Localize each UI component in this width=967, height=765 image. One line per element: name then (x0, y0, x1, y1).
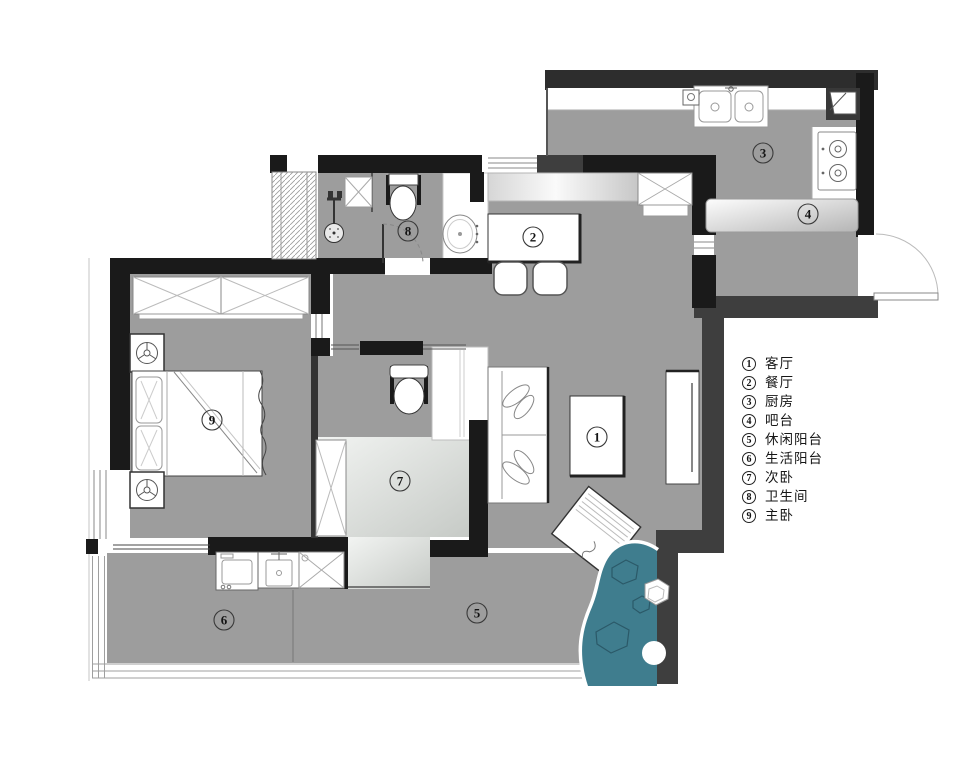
entrance-door-arc (876, 234, 938, 296)
entrance-door (874, 234, 938, 300)
dining-chair (533, 262, 567, 295)
legend-number: 5 (742, 433, 756, 447)
dining-chair (494, 262, 527, 295)
bedroom-left-wall (110, 258, 130, 470)
bedroom-top-wall (110, 258, 386, 274)
legend-number: 1 (742, 357, 756, 371)
svg-text:3: 3 (760, 146, 767, 161)
nightstand-bottom (130, 472, 164, 508)
nightstand-top (130, 334, 164, 372)
legend-item-bedroom2: 7 次卧 (742, 471, 823, 485)
stone-circle (642, 641, 666, 665)
dining-cabinet (638, 173, 692, 216)
laundry-balcony (216, 551, 344, 590)
svg-text:2: 2 (530, 230, 537, 245)
bedroom-door-opening (311, 314, 330, 338)
legend-number: 3 (742, 395, 756, 409)
bedroom-west-window (90, 470, 113, 539)
legend-item-dining: 2 餐厅 (742, 376, 823, 390)
sideboard (488, 173, 638, 201)
legend-label: 餐厅 (765, 376, 794, 390)
bar-passthrough (694, 235, 714, 255)
balcony-cabinet (299, 552, 344, 588)
bathroom-top-wall (318, 155, 482, 173)
legend: 1 客厅 2 餐厅 3 厨房 4 吧台 5 休闲阳台 6 生活阳台 7 次卧 8… (742, 357, 823, 523)
legend-label: 主卧 (765, 509, 794, 523)
legend-number: 2 (742, 376, 756, 390)
legend-label: 客厅 (765, 357, 794, 371)
legend-number: 7 (742, 471, 756, 485)
legend-item-living: 1 客厅 (742, 357, 823, 371)
dining-north-window (488, 158, 537, 168)
sofa (488, 367, 548, 503)
legend-label: 卫生间 (765, 490, 809, 504)
bar-counter (706, 199, 858, 232)
svg-text:5: 5 (474, 606, 481, 621)
legend-item-bar: 4 吧台 (742, 414, 823, 428)
wardrobe (133, 277, 309, 319)
legend-item-master-bedroom: 9 主卧 (742, 509, 823, 523)
entrance-door-leaf (874, 293, 938, 300)
legend-label: 次卧 (765, 471, 794, 485)
bedroom2-wardrobe (316, 440, 346, 536)
legend-number: 4 (742, 414, 756, 428)
legend-item-bathroom: 8 卫生间 (742, 490, 823, 504)
living-right-wall (702, 318, 724, 550)
washing-machine (216, 552, 258, 590)
legend-number: 9 (742, 509, 756, 523)
bedroom-balcony-slider (113, 545, 210, 549)
legend-number: 6 (742, 452, 756, 466)
svg-text:9: 9 (209, 413, 216, 428)
floor-plan-canvas: 1 2 3 4 5 6 7 8 (0, 0, 967, 765)
corner-cabinet (826, 88, 860, 120)
tv-cabinet (666, 371, 699, 484)
legend-item-leisure-balcony: 5 休闲阳台 (742, 433, 823, 447)
legend-label: 吧台 (765, 414, 794, 428)
legend-number: 8 (742, 490, 756, 504)
legend-label: 厨房 (765, 395, 794, 409)
svg-text:8: 8 (405, 224, 412, 239)
legend-item-laundry-balcony: 6 生活阳台 (742, 452, 823, 466)
legend-label: 生活阳台 (765, 452, 823, 466)
bed (132, 371, 266, 476)
entrance-opening (858, 235, 875, 296)
legend-label: 休闲阳台 (765, 433, 823, 447)
svg-text:7: 7 (397, 474, 404, 489)
svg-text:6: 6 (221, 613, 228, 628)
legend-item-kitchen: 3 厨房 (742, 395, 823, 409)
hood-appliance (683, 90, 699, 105)
bedroom-right-wall (311, 274, 330, 314)
kitchen-sink (694, 86, 768, 127)
shower-cabinet (345, 177, 372, 207)
laundry-sink (258, 551, 299, 588)
stove (818, 132, 856, 190)
svg-text:1: 1 (594, 430, 601, 445)
kitchen-bottom-wall (694, 296, 878, 318)
svg-text:4: 4 (805, 207, 812, 222)
bathroom-floor (318, 173, 444, 259)
